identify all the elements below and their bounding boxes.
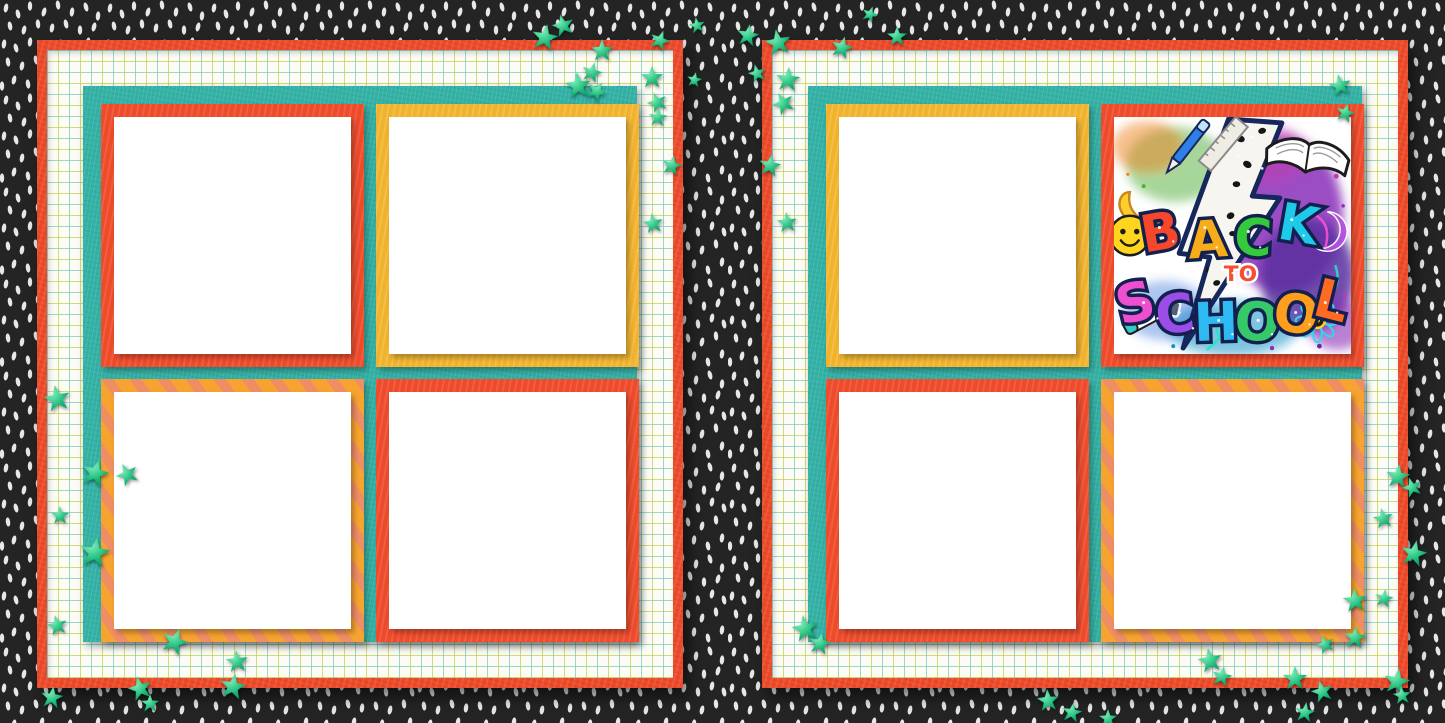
back-to-school-art: B A C K TO S C H O O L: [1114, 117, 1351, 354]
star-icon: [807, 630, 832, 655]
scrapbook-page-left: [37, 40, 683, 688]
grid-paper-layer: [47, 50, 673, 678]
star-icon: [78, 535, 112, 569]
star-icon: [641, 66, 663, 88]
star-icon: [1210, 664, 1234, 688]
star-icon: [45, 613, 69, 637]
star-icon: [42, 383, 72, 413]
photo-placeholder: [839, 117, 1076, 354]
star-icon: [530, 22, 560, 52]
star-icon: [1399, 538, 1430, 569]
star-icon: [763, 27, 793, 57]
photo-placeholder: [839, 392, 1076, 629]
photo-frame-striped: [1101, 379, 1364, 642]
photo-frame-striped: [101, 379, 364, 642]
star-icon: [1392, 685, 1412, 705]
word-to: TO: [1224, 262, 1257, 287]
star-icon: [685, 70, 702, 87]
star-icon: [40, 685, 65, 710]
star-icon: [1371, 506, 1394, 529]
teal-mat-left: [83, 86, 637, 642]
photo-frame-red: [376, 379, 639, 642]
photo-frame-yellow: [826, 104, 1089, 367]
svg-text:C: C: [1152, 281, 1198, 347]
star-icon: [591, 39, 613, 61]
star-icon: [757, 152, 782, 177]
star-icon: [1343, 625, 1367, 649]
star-icon: [642, 212, 665, 235]
star-icon: [51, 506, 69, 524]
star-icon: [887, 26, 907, 46]
svg-text:B: B: [1136, 200, 1185, 266]
star-icon: [1036, 688, 1060, 712]
photo-frame-red: [101, 104, 364, 367]
star-icon: [218, 671, 248, 701]
photo-frame-red: [826, 379, 1089, 642]
back-to-school-graphic: B A C K TO S C H O O L: [1114, 117, 1351, 354]
grid-paper-layer: B A C K TO S C H O O L: [772, 50, 1398, 678]
art-frame: B A C K TO S C H O O L: [1101, 104, 1364, 367]
photo-placeholder: [114, 117, 351, 354]
scrapbook-preview: B A C K TO S C H O O L: [0, 0, 1445, 723]
svg-text:C: C: [1233, 207, 1274, 269]
scrapbook-page-right: B A C K TO S C H O O L: [762, 40, 1408, 688]
star-icon: [1294, 701, 1317, 723]
star-icon: [688, 16, 707, 35]
star-icon: [1333, 100, 1356, 123]
photo-frame-yellow: [376, 104, 639, 367]
star-icon: [1374, 588, 1395, 609]
star-icon: [648, 107, 668, 127]
star-icon: [1283, 666, 1307, 690]
star-icon: [776, 211, 798, 233]
teal-mat-right: B A C K TO S C H O O L: [808, 86, 1362, 642]
star-icon: [1342, 587, 1368, 613]
photo-placeholder: [1114, 392, 1351, 629]
star-icon: [225, 649, 249, 673]
photo-placeholder: [114, 392, 351, 629]
star-icon: [1099, 709, 1117, 723]
star-icon: [1327, 72, 1352, 97]
star-icon: [141, 694, 159, 712]
star-icon: [1060, 700, 1083, 723]
star-icon: [660, 153, 684, 177]
photo-placeholder: [389, 117, 626, 354]
photo-placeholder: [389, 392, 626, 629]
star-icon: [735, 22, 760, 47]
